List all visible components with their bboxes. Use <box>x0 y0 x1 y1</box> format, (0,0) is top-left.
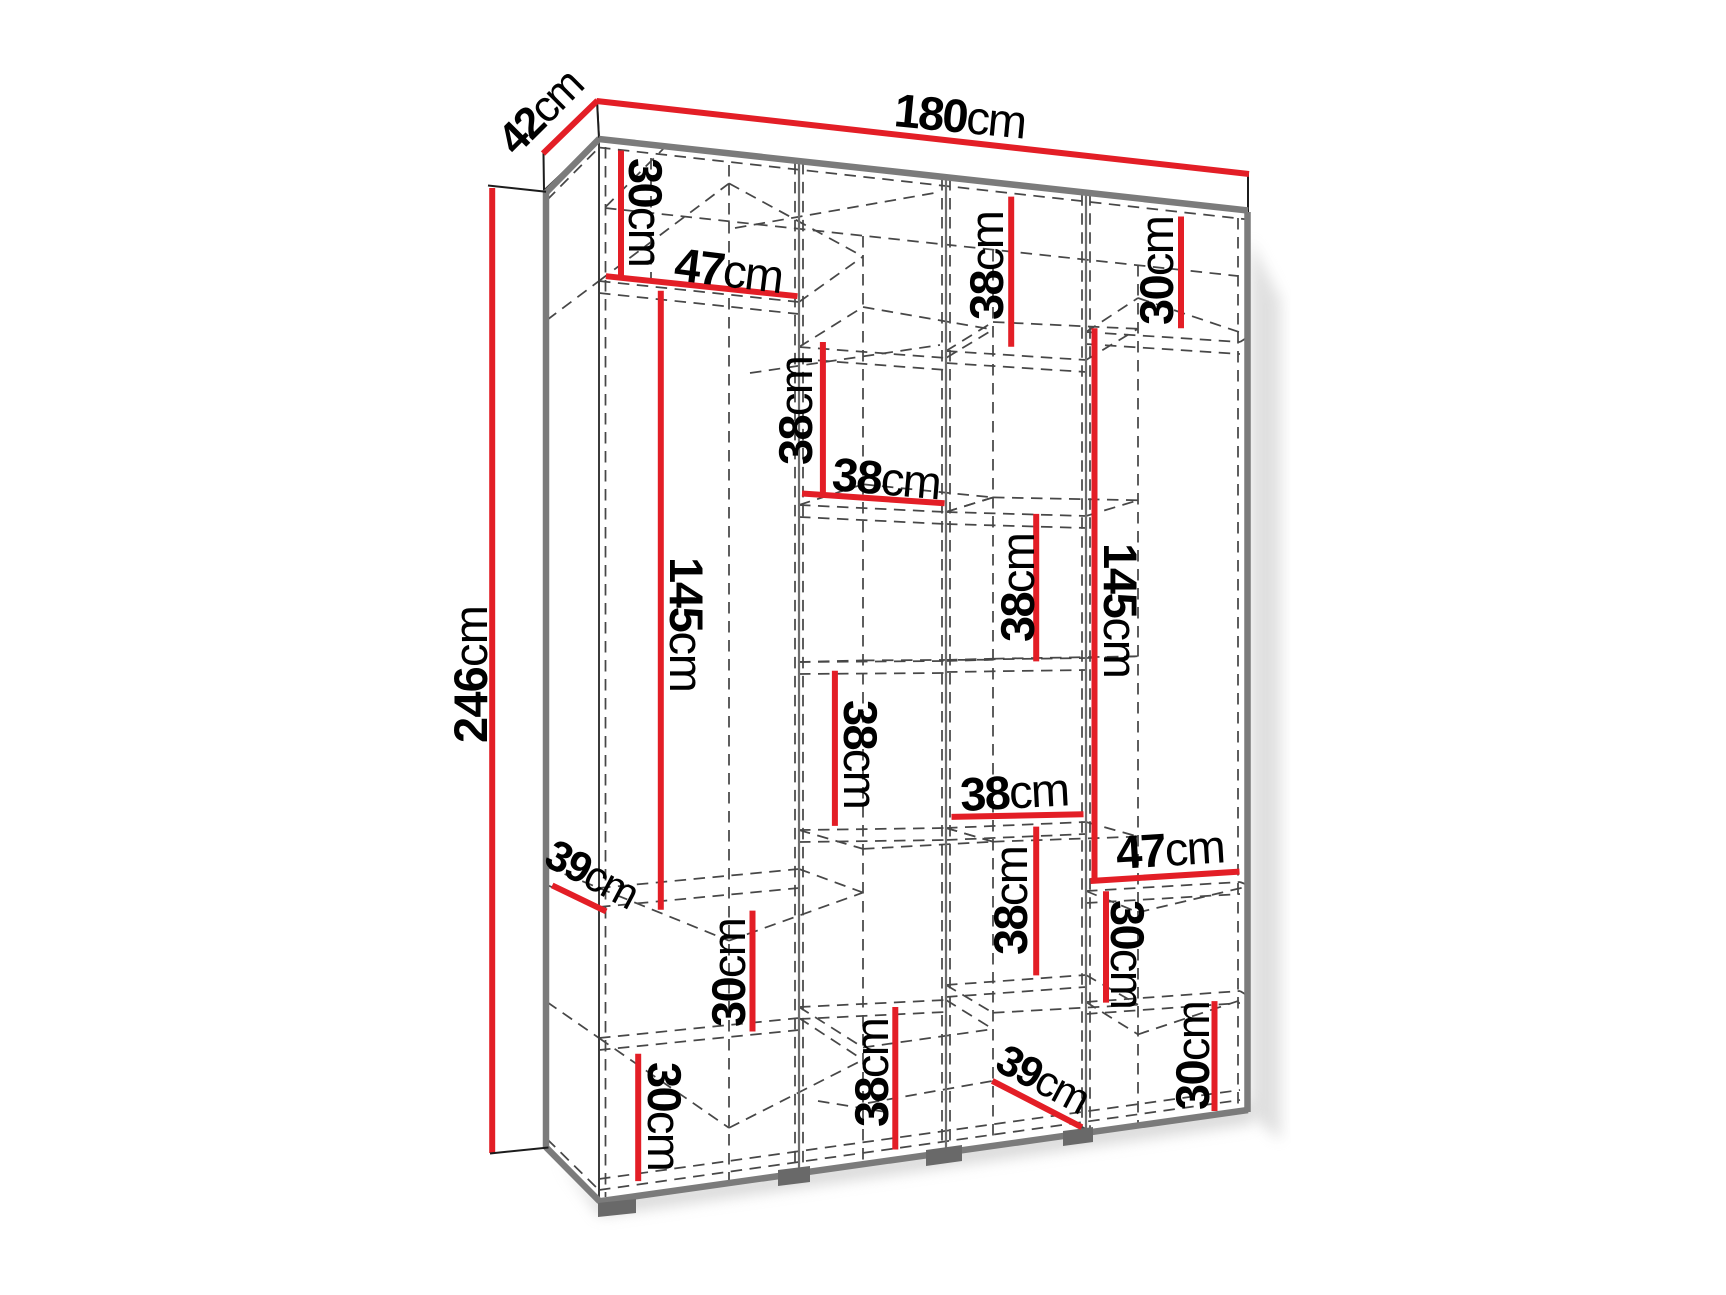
svg-text:30cm: 30cm <box>1166 1002 1219 1110</box>
svg-text:30cm: 30cm <box>1130 217 1183 325</box>
svg-text:30cm: 30cm <box>619 158 672 266</box>
svg-text:145cm: 145cm <box>1094 543 1147 678</box>
svg-text:38cm: 38cm <box>959 762 1070 821</box>
svg-text:38cm: 38cm <box>991 534 1044 642</box>
svg-text:47cm: 47cm <box>1114 819 1225 879</box>
svg-text:38cm: 38cm <box>960 212 1013 320</box>
svg-text:38cm: 38cm <box>834 700 887 808</box>
svg-text:30cm: 30cm <box>1101 900 1154 1008</box>
svg-text:38cm: 38cm <box>830 447 942 509</box>
svg-text:38cm: 38cm <box>845 1019 898 1127</box>
svg-text:30cm: 30cm <box>702 919 755 1027</box>
svg-text:38cm: 38cm <box>984 847 1037 955</box>
svg-text:145cm: 145cm <box>660 557 713 692</box>
svg-text:246cm: 246cm <box>444 606 497 743</box>
svg-text:30cm: 30cm <box>638 1062 691 1170</box>
svg-text:38cm: 38cm <box>769 357 822 465</box>
